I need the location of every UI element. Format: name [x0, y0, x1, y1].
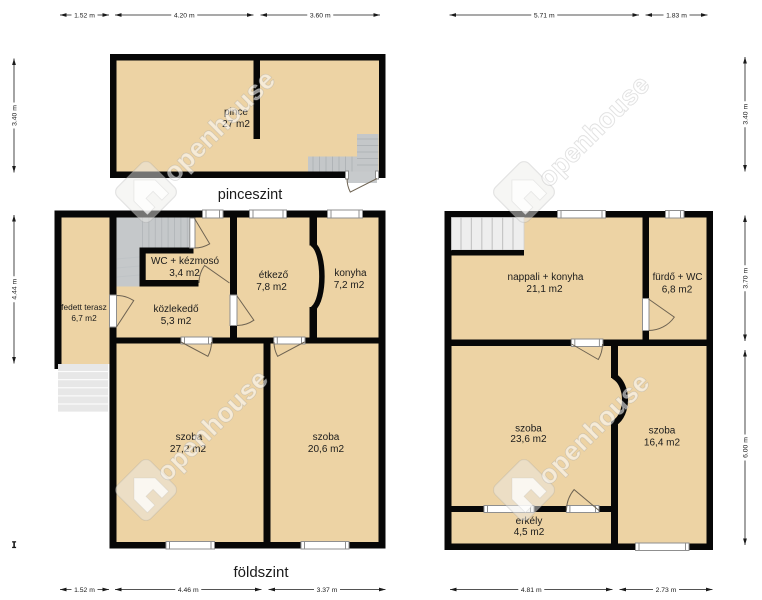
svg-text:23,6 m2: 23,6 m2 — [510, 434, 547, 445]
svg-text:4.46 m: 4.46 m — [178, 587, 199, 594]
svg-text:7,2 m2: 7,2 m2 — [334, 280, 365, 291]
svg-text:nappali + konyha: nappali + konyha — [508, 272, 584, 283]
svg-text:konyha: konyha — [334, 268, 367, 279]
svg-text:3.40 m: 3.40 m — [11, 105, 18, 126]
svg-text:3.70 m: 3.70 m — [742, 268, 749, 289]
svg-text:WC + kézmosó: WC + kézmosó — [151, 256, 220, 267]
svg-text:21,1 m2: 21,1 m2 — [526, 284, 563, 295]
svg-text:6,8 m2: 6,8 m2 — [662, 285, 693, 296]
svg-text:4.81 m: 4.81 m — [521, 587, 542, 594]
svg-text:4.20 m: 4.20 m — [174, 12, 195, 19]
svg-text:7,8 m2: 7,8 m2 — [256, 282, 287, 293]
svg-text:közlekedő: közlekedő — [153, 304, 198, 315]
svg-text:fürdő + WC: fürdő + WC — [653, 272, 703, 283]
svg-text:1.83 m: 1.83 m — [666, 12, 687, 19]
svg-text:6.00 m: 6.00 m — [742, 437, 749, 458]
svg-text:2.73 m: 2.73 m — [656, 587, 677, 594]
svg-text:20,6 m2: 20,6 m2 — [308, 444, 345, 455]
svg-text:étkező: étkező — [259, 270, 289, 281]
svg-text:1.52 m: 1.52 m — [74, 587, 95, 594]
svg-text:4,5 m2: 4,5 m2 — [514, 527, 545, 538]
svg-text:fedett terasz: fedett terasz — [61, 302, 107, 312]
svg-text:16,4 m2: 16,4 m2 — [644, 438, 681, 449]
svg-text:szoba: szoba — [649, 426, 676, 437]
svg-text:1.52 m: 1.52 m — [74, 12, 95, 19]
svg-text:pinceszint: pinceszint — [218, 187, 282, 203]
svg-text:földszint: földszint — [233, 564, 289, 581]
svg-text:4.44 m: 4.44 m — [11, 279, 18, 300]
svg-text:szoba: szoba — [313, 432, 340, 443]
svg-text:3.37 m: 3.37 m — [317, 587, 338, 594]
svg-text:3,4 m2: 3,4 m2 — [169, 268, 200, 279]
svg-text:5,3 m2: 5,3 m2 — [161, 316, 192, 327]
svg-text:5.71 m: 5.71 m — [534, 12, 555, 19]
svg-text:3.40 m: 3.40 m — [742, 104, 749, 125]
svg-text:3.60 m: 3.60 m — [310, 12, 331, 19]
svg-text:6,7 m2: 6,7 m2 — [71, 313, 97, 323]
